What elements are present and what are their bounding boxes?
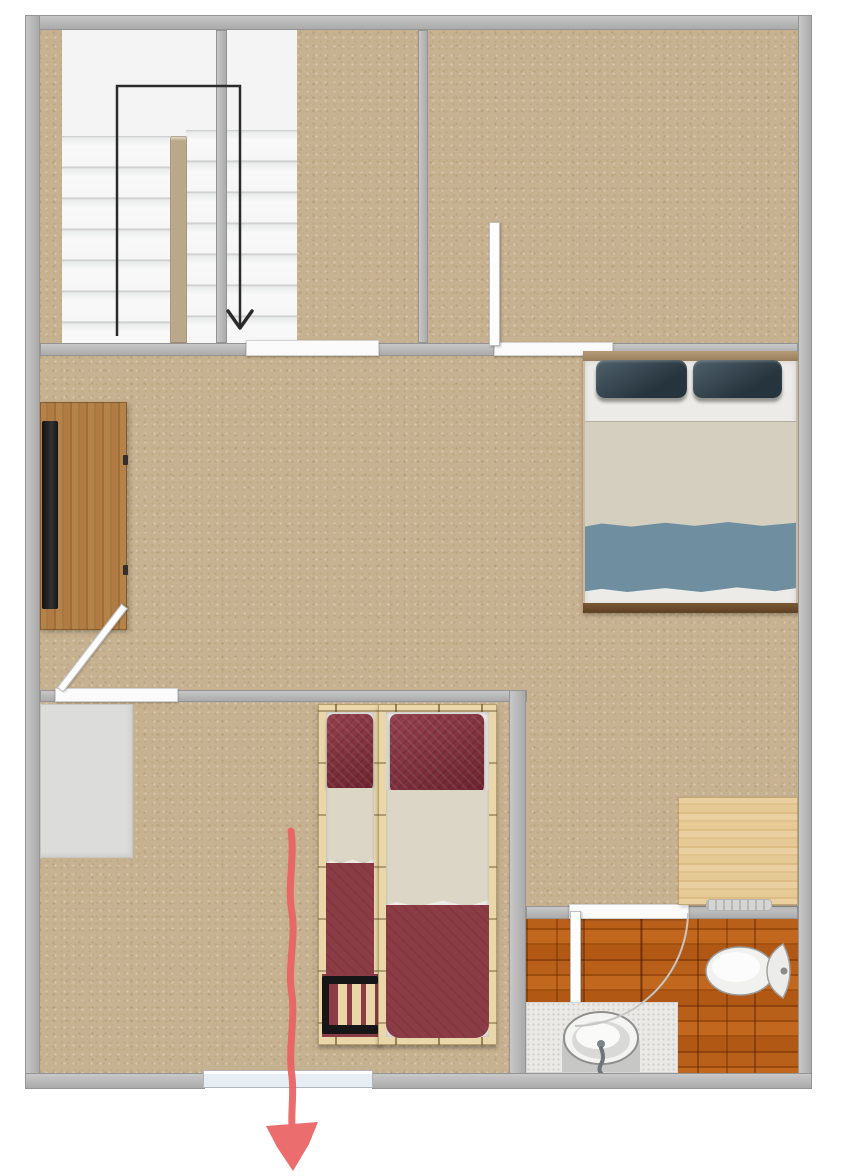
exit-arrow[interactable] [266,831,318,1171]
annotation-overlay [0,0,842,1176]
exit-arrow-head [266,1122,318,1171]
floor-plan-canvas [0,0,842,1176]
door-swing-arc [575,913,688,1026]
stair-path-line[interactable] [117,86,252,336]
